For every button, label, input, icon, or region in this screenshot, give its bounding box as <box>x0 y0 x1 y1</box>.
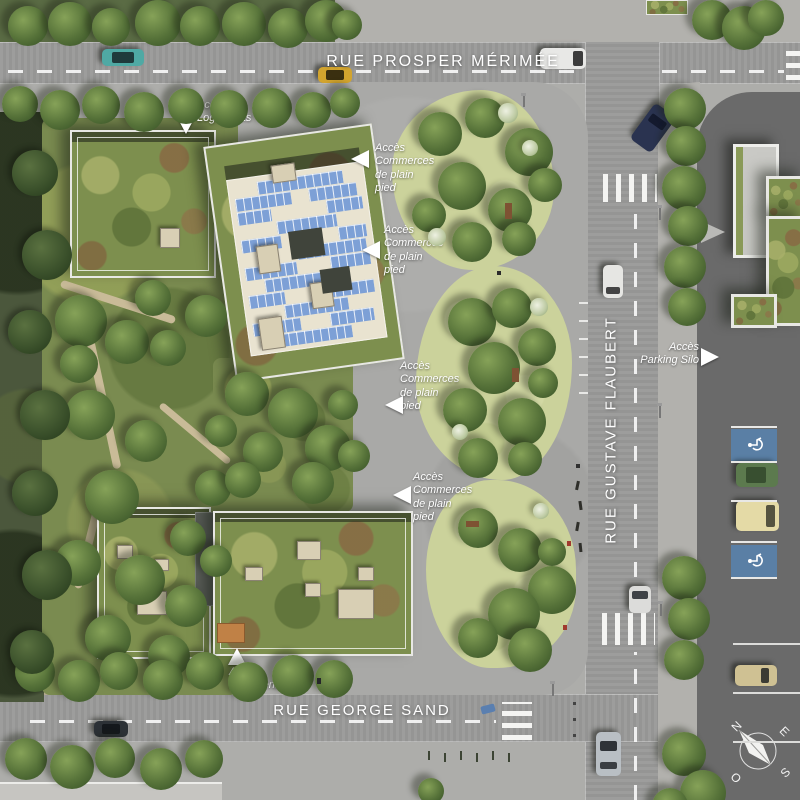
tree <box>664 640 704 680</box>
compass-rose: N E S O <box>725 720 795 790</box>
tree <box>292 462 334 504</box>
tree <box>105 320 149 364</box>
tree <box>664 88 706 130</box>
wheelchair-icon <box>745 435 765 455</box>
svg-text:S: S <box>778 765 794 781</box>
handicap-parking-spot <box>731 545 777 577</box>
road-marking <box>466 521 479 527</box>
tree <box>5 738 47 780</box>
tree <box>60 345 98 383</box>
arrow-acces-commerces-4 <box>393 486 411 504</box>
street-furniture <box>492 751 494 760</box>
tree <box>295 92 331 128</box>
tree <box>165 585 207 627</box>
road-marking <box>579 338 588 340</box>
tree <box>528 368 558 398</box>
roof-green-strip <box>736 147 743 255</box>
street-furniture <box>660 604 662 616</box>
tree <box>664 246 706 288</box>
tree <box>50 745 94 789</box>
rooftop-plant-box <box>256 244 282 275</box>
street-furniture <box>497 271 501 275</box>
wheelchair-icon <box>745 551 765 571</box>
street-furniture <box>428 751 430 760</box>
tree <box>115 555 165 605</box>
handicap-parking-spot <box>731 429 777 461</box>
tree <box>100 652 138 690</box>
road-marking <box>505 203 512 219</box>
tree <box>222 2 266 46</box>
tree <box>210 90 248 128</box>
tree <box>538 538 566 566</box>
tree <box>268 388 318 438</box>
street-name-gustave-flaubert: RUE GUSTAVE FLAUBERT <box>603 316 620 544</box>
arrow-acces-parking-silo <box>701 348 719 366</box>
tree <box>438 162 486 210</box>
tree <box>452 222 492 262</box>
tree <box>85 470 139 524</box>
tree <box>528 168 562 202</box>
street-furniture <box>659 208 661 220</box>
road-marking <box>657 205 662 208</box>
road-marking <box>733 692 800 694</box>
tree <box>668 598 710 640</box>
rooftop-plant-box <box>258 316 286 351</box>
road-marking <box>731 461 777 463</box>
road-marking <box>521 93 526 96</box>
site-plan: RUE PROSPER MÉRIMÉE RUE GUSTAVE FLAUBERT… <box>0 0 800 800</box>
street-name-prosper-merimee: RUE PROSPER MÉRIMÉE <box>326 53 560 71</box>
street-furniture <box>659 406 661 418</box>
lane-dashes-vertical-road <box>634 210 637 606</box>
flowering-shrub <box>498 103 518 123</box>
flowering-shrub <box>452 424 468 440</box>
street-furniture <box>573 718 576 721</box>
road-gustave-flaubert <box>585 42 660 800</box>
crosswalk-flaubert-south <box>602 613 655 645</box>
tree <box>225 462 261 498</box>
tree <box>508 442 542 476</box>
tree <box>135 280 171 316</box>
tree <box>10 630 54 674</box>
street-furniture <box>552 684 554 696</box>
street-furniture <box>444 753 446 762</box>
tree <box>458 508 498 548</box>
car-green-parked <box>736 463 778 487</box>
tree <box>185 740 223 778</box>
tree <box>498 398 546 446</box>
building-south-slab <box>0 782 222 800</box>
roof-walkway-patch <box>320 266 353 294</box>
arrow-acces-commerces-1 <box>351 150 369 168</box>
tree <box>458 618 498 658</box>
crosswalk-flaubert-north <box>603 174 657 202</box>
flowering-shrub <box>533 503 549 519</box>
tree <box>150 330 186 366</box>
flowering-shrub <box>530 298 548 316</box>
road-marking <box>579 392 588 394</box>
tree <box>330 88 360 118</box>
tree <box>205 415 237 447</box>
street-name-george-sand: RUE GEORGE SAND <box>273 702 451 719</box>
street-furniture <box>508 753 510 762</box>
tree <box>8 310 52 354</box>
crosswalk-merimee-east <box>786 44 800 80</box>
tree <box>55 295 107 347</box>
flowering-shrub <box>522 140 538 156</box>
label-acces-parking-silo: Accès Parking Silo <box>627 341 699 368</box>
svg-text:O: O <box>728 770 745 787</box>
tree <box>268 8 308 48</box>
tree <box>225 372 269 416</box>
road-marking <box>512 368 519 382</box>
car-silver-flaubert <box>596 732 621 776</box>
car-beige-parked <box>735 665 777 686</box>
tree <box>135 0 181 46</box>
tree <box>508 628 552 672</box>
building-east-green-roof <box>731 294 777 328</box>
tree <box>92 8 130 46</box>
street-furniture <box>563 625 567 630</box>
roof-walkway-patch <box>288 227 326 259</box>
tree <box>662 166 706 210</box>
tree <box>185 295 227 337</box>
tree <box>518 328 556 366</box>
tree <box>143 660 183 700</box>
street-furniture <box>567 541 571 546</box>
roof-terrace-table <box>217 623 245 643</box>
tree <box>65 390 115 440</box>
van-white-flaubert <box>603 265 623 298</box>
tree <box>458 438 498 478</box>
street-furniture <box>476 753 478 762</box>
road-marking <box>658 601 663 604</box>
van-cream-parked <box>736 501 779 531</box>
tree <box>8 6 48 46</box>
green-roof-sliver-top <box>646 0 688 15</box>
tree <box>168 88 204 124</box>
tree <box>332 10 362 40</box>
building-east-green-roof <box>766 176 800 220</box>
svg-text:E: E <box>777 724 793 740</box>
tree <box>748 0 784 36</box>
tree <box>328 390 358 420</box>
rooftop-plant-box <box>338 589 374 619</box>
road-marking <box>731 577 777 579</box>
tree <box>662 556 706 600</box>
tree <box>252 88 292 128</box>
building-south-right-green-roof <box>213 511 413 656</box>
rooftop-plant-box <box>245 567 263 581</box>
road-marking <box>579 374 588 376</box>
tree <box>40 90 80 130</box>
tree <box>666 126 706 166</box>
tree <box>272 655 314 697</box>
tree <box>20 390 70 440</box>
street-furniture <box>460 751 462 760</box>
street-furniture <box>576 464 580 468</box>
road-marking <box>731 541 777 543</box>
tree <box>48 2 92 46</box>
tree <box>82 86 120 124</box>
street-furniture <box>523 96 525 107</box>
street-furniture <box>573 734 576 737</box>
tree <box>412 198 446 232</box>
tree <box>22 550 72 600</box>
tree <box>2 86 38 122</box>
tree <box>668 206 708 246</box>
rooftop-plant-box <box>358 567 374 581</box>
rooftop-plant-box <box>305 583 321 597</box>
road-marking <box>550 681 555 684</box>
road-marking <box>579 320 588 322</box>
tree <box>124 92 164 132</box>
car-white-flaubert <box>629 586 651 613</box>
tree <box>448 298 496 346</box>
tree <box>58 660 100 702</box>
tree <box>12 470 58 516</box>
street-furniture <box>573 702 576 705</box>
road-marking <box>579 356 588 358</box>
road-marking <box>731 426 777 428</box>
road-marking <box>731 500 777 502</box>
tree <box>668 288 706 326</box>
tree <box>95 738 135 778</box>
tree <box>12 150 58 196</box>
tree <box>418 778 444 800</box>
tree <box>125 420 167 462</box>
car-teal <box>102 49 144 66</box>
road-marking <box>733 643 800 645</box>
tree <box>140 748 182 790</box>
tree <box>170 520 206 556</box>
rooftop-plant-box <box>160 228 180 248</box>
tree <box>22 230 72 280</box>
arrow-acces-commerces-2 <box>362 241 380 259</box>
rooftop-plant-box <box>297 541 321 560</box>
tree <box>418 112 462 156</box>
tree <box>498 528 542 572</box>
tree <box>338 440 370 472</box>
tree <box>502 222 536 256</box>
lane-dashes-top-road <box>662 70 784 73</box>
crosswalk-george-sand <box>502 702 532 740</box>
rooftop-plant-box <box>271 162 297 183</box>
tree <box>186 652 224 690</box>
road-marking <box>579 302 588 304</box>
car-dark-george-sand <box>94 721 128 737</box>
tree <box>180 6 220 46</box>
road-marking <box>657 403 662 406</box>
tree <box>200 545 232 577</box>
roof-parapet-line <box>77 137 209 271</box>
arrow-acces-commerces-3 <box>385 396 403 414</box>
tree <box>492 288 532 328</box>
lane-dashes-vertical-road <box>634 652 637 800</box>
flowering-shrub <box>428 228 446 246</box>
road-marking <box>733 741 800 743</box>
tree <box>228 662 268 702</box>
building-northwest-green-roof <box>70 130 216 278</box>
street-furniture <box>317 678 321 684</box>
